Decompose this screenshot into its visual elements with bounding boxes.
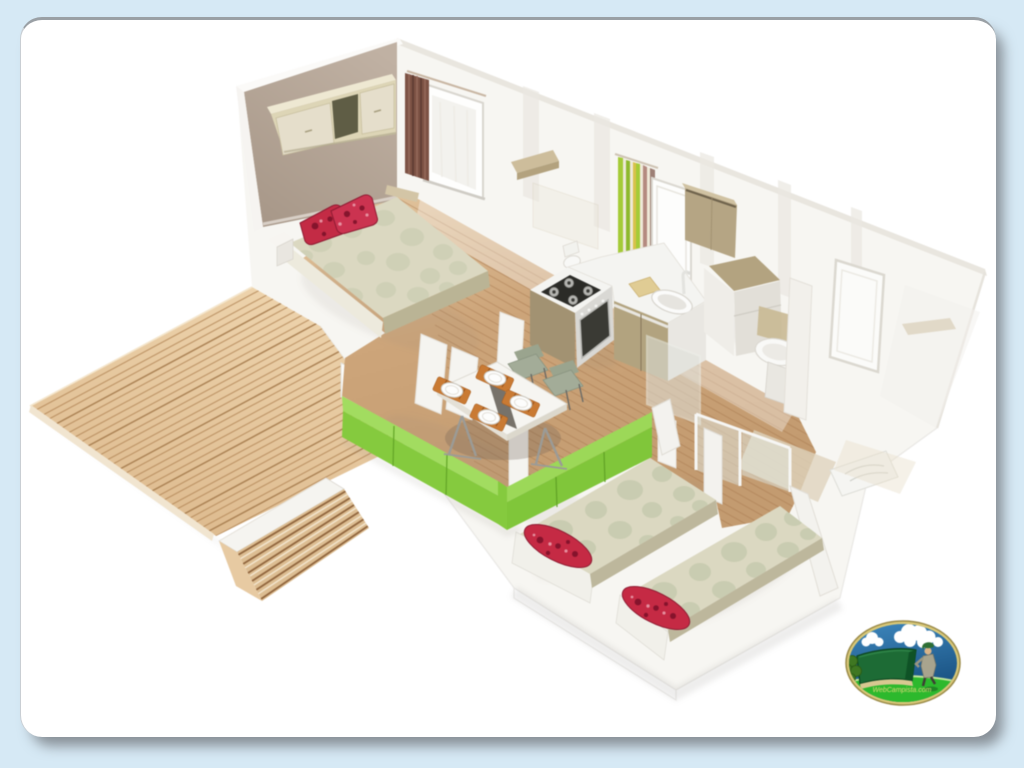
svg-text:WebCampista.com: WebCampista.com [872,687,931,694]
